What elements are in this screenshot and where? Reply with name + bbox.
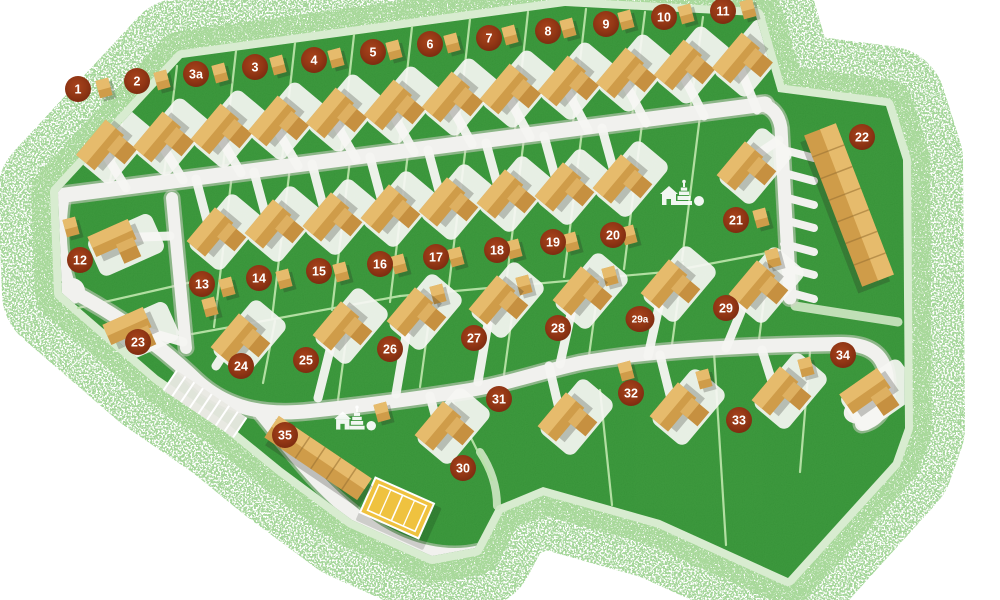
plot-badge-label-3: 3 [252,61,259,75]
plot-badge-label-16: 16 [373,258,387,272]
playground-tower-tier [679,192,689,196]
plot-badge-label-15: 15 [312,265,326,279]
playground-tower-tier [351,421,363,425]
plot-badge-1[interactable]: 1 [65,76,91,102]
plot-badge-30[interactable]: 30 [450,455,476,481]
plot-badge-label-21: 21 [729,214,743,228]
plot-badge-label-25: 25 [299,354,313,368]
plot-badge-label-24: 24 [234,360,248,374]
plot-badge-19[interactable]: 19 [540,229,566,255]
plot-badge-3[interactable]: 3 [242,54,268,80]
playground-tower-tier [676,201,692,205]
plot-badge-27[interactable]: 27 [461,325,487,351]
plot-badge-25[interactable]: 25 [293,347,319,373]
plot-badge-label-14: 14 [252,272,266,286]
plot-badge-label-11: 11 [716,5,729,19]
plot-badge-label-9: 9 [603,18,610,32]
plot-badge-28[interactable]: 28 [545,315,571,341]
plot-badge-16[interactable]: 16 [367,251,393,277]
plot-badge-label-12: 12 [73,254,87,268]
plot-badge-label-31: 31 [492,393,506,407]
site-plan-canvas: 123a345678910111213141516171819202122232… [0,0,1000,600]
playground-tower-tier [678,196,691,200]
plot-badge-14[interactable]: 14 [246,265,272,291]
plot-badge-7[interactable]: 7 [476,25,502,51]
plot-badge-21[interactable]: 21 [723,207,749,233]
playground-house-door [667,199,672,205]
plot-badge-3a[interactable]: 3a [183,61,209,87]
plot-badge-label-7: 7 [486,32,493,46]
plot-badge-label-35: 35 [278,429,292,443]
plot-badge-label-13: 13 [195,278,209,292]
plot-badge-label-5: 5 [370,46,377,60]
plot-badge-32[interactable]: 32 [618,380,644,406]
plot-badge-label-29: 29 [719,302,733,316]
plot-badge-5[interactable]: 5 [360,39,386,65]
plot-badge-label-2: 2 [134,75,141,89]
plot-badge-33[interactable]: 33 [726,407,752,433]
site-map: 123a345678910111213141516171819202122232… [0,0,1000,600]
plot-badge-label-6: 6 [427,38,434,52]
playground-ball [694,196,704,206]
plot-badge-20[interactable]: 20 [600,222,626,248]
plot-badge-label-23: 23 [131,336,145,350]
plot-badge-label-19: 19 [546,236,560,250]
plot-badge-label-10: 10 [657,11,671,25]
playground-tower-tier [681,188,687,191]
plot-badge-13[interactable]: 13 [189,271,215,297]
plot-badge-15[interactable]: 15 [306,258,332,284]
plot-badge-34[interactable]: 34 [830,342,856,368]
plot-badge-label-8: 8 [545,25,552,39]
plot-badge-29a[interactable]: 29a [626,306,655,332]
playground-tower-finial [355,406,358,409]
plot-badge-label-28: 28 [551,322,565,336]
plot-badge-label-30: 30 [456,462,470,476]
plot-badge-8[interactable]: 8 [535,18,561,44]
plot-badge-23[interactable]: 23 [125,329,151,355]
plot-badge-label-33: 33 [732,414,746,428]
plot-badge-label-29a: 29a [632,315,649,326]
plot-badge-label-1: 1 [75,83,82,97]
playground-house-door [340,424,344,430]
plot-badge-label-34: 34 [836,349,850,363]
plot-badge-10[interactable]: 10 [651,4,677,30]
plot-badge-18[interactable]: 18 [484,237,510,263]
playground-tower-tier [354,413,360,416]
plot-badge-17[interactable]: 17 [423,244,449,270]
plot-badge-label-4: 4 [311,54,318,68]
plot-badge-24[interactable]: 24 [228,353,254,379]
plot-badge-9[interactable]: 9 [593,11,619,37]
plot-badge-29[interactable]: 29 [713,295,739,321]
plot-badge-label-17: 17 [429,251,443,265]
plot-badge-label-18: 18 [490,244,504,258]
plot-badge-12[interactable]: 12 [67,247,93,273]
plot-badge-4[interactable]: 4 [301,47,327,73]
playground-tower-finial [682,180,686,184]
playground-tower-tier [349,426,364,430]
plot-badge-label-22: 22 [855,131,869,145]
plot-badge-2[interactable]: 2 [124,68,150,94]
plot-badge-label-26: 26 [383,343,397,357]
plot-badge-label-3a: 3a [189,68,204,82]
plot-badge-35[interactable]: 35 [272,422,298,448]
plot-badge-6[interactable]: 6 [417,31,443,57]
plot-badge-26[interactable]: 26 [377,336,403,362]
playground-tower-tier [352,417,362,420]
plot-badge-label-27: 27 [467,332,481,346]
plot-badge-22[interactable]: 22 [849,124,875,150]
plot-badge-31[interactable]: 31 [486,386,512,412]
playground-ball [367,421,377,431]
playground-tower-pole [356,409,358,413]
plot-badge-label-32: 32 [624,387,638,401]
plot-badge-label-20: 20 [606,229,620,243]
playground-tower-pole [683,183,685,187]
